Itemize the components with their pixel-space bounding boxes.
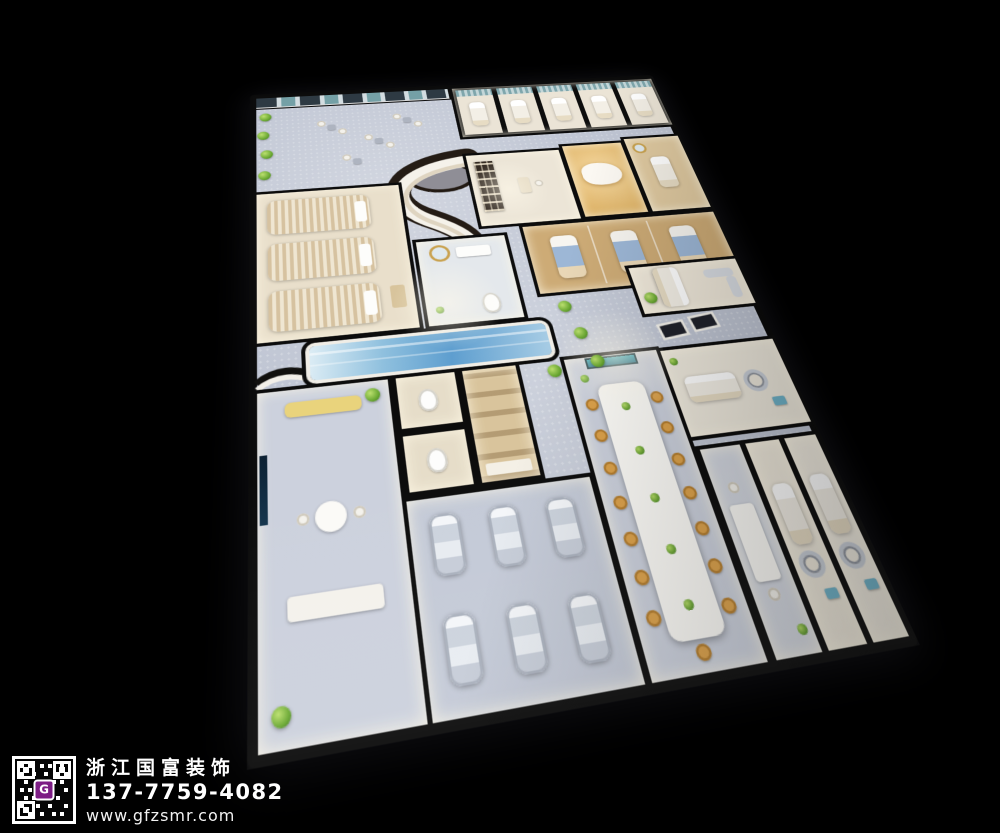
website-url: www.gfzsmr.com <box>86 805 284 826</box>
conference-chair <box>633 569 651 586</box>
office-chair <box>726 481 741 494</box>
display-shelf <box>473 161 504 212</box>
cubicle-bed <box>630 93 654 116</box>
canopy-bed <box>268 282 383 332</box>
company-name: 浙江国富装饰 <box>86 756 284 780</box>
conference-chair <box>649 391 665 404</box>
conference-chair <box>719 597 738 615</box>
plant <box>668 358 679 366</box>
canopy-bed <box>267 194 372 235</box>
treatment-recliner <box>505 601 550 676</box>
room-canopy-beds <box>257 185 420 344</box>
conference-chair <box>584 398 600 411</box>
equipment-cart <box>772 395 788 405</box>
conference-chair <box>612 495 629 510</box>
qr-logo-badge: G <box>34 780 55 801</box>
toilet <box>426 447 449 473</box>
plant <box>271 705 291 731</box>
cubicle-bed <box>550 98 573 122</box>
treatment-recliner <box>487 504 528 568</box>
brand-text-block: 浙江国富装饰 137-7759-4082 www.gfzsmr.com <box>86 756 284 826</box>
brand-watermark: G 浙江国富装饰 137-7759-4082 www.gfzsmr.com <box>12 756 284 826</box>
office-chair <box>297 513 310 527</box>
cubicle-curtain <box>576 83 613 91</box>
cubicle-bed <box>590 95 614 118</box>
conference-chair <box>602 461 619 476</box>
bathroom-sink <box>455 244 491 257</box>
vip-bed <box>683 372 743 403</box>
round-mirror <box>431 247 449 261</box>
round-table <box>314 499 348 534</box>
tv-screen <box>259 455 267 526</box>
plant <box>364 387 381 402</box>
office-chair <box>766 587 782 602</box>
blue-bed <box>549 235 588 279</box>
equipment-cart <box>824 587 841 600</box>
yellow-sofa <box>284 395 362 418</box>
office-chair <box>353 505 366 519</box>
treatment-recliner <box>442 611 485 688</box>
room-wc-2 <box>403 429 474 492</box>
side-cabinet <box>390 284 408 308</box>
conference-chair <box>659 421 675 434</box>
consult-desk <box>517 177 532 193</box>
cubicle-curtain <box>614 81 652 89</box>
equipment-cart <box>863 578 880 590</box>
cubicle-curtain <box>455 89 493 97</box>
treatment-recliner <box>428 512 467 577</box>
plant <box>435 306 444 314</box>
cubicle-curtain <box>496 87 533 95</box>
spa-lounger <box>579 162 626 186</box>
plant <box>580 374 591 383</box>
cubicle-curtain <box>536 85 573 93</box>
toilet <box>481 292 503 313</box>
conference-chair <box>693 520 711 536</box>
glass-partition <box>587 226 608 284</box>
counter <box>485 458 533 476</box>
floorplan-3d-render <box>247 75 920 770</box>
magnifier-lamp <box>745 372 767 389</box>
cubicle <box>455 89 503 135</box>
canopy-bed <box>268 236 377 281</box>
qr-finder <box>17 761 35 779</box>
conference-chair <box>670 452 687 466</box>
cubicle-bed <box>468 102 489 126</box>
vip-sofa <box>725 275 744 297</box>
conference-chair <box>593 429 609 443</box>
magnifier-lamp <box>840 545 864 565</box>
qr-code: G <box>12 756 76 824</box>
scene-canvas: G 浙江国富装饰 137-7759-4082 www.gfzsmr.com <box>0 0 1000 833</box>
room-wc-1 <box>396 372 463 429</box>
treatment-recliner <box>544 496 587 559</box>
phone-number: 137-7759-4082 <box>86 780 284 805</box>
treatment-recliner <box>566 592 613 665</box>
cubicle-bed <box>510 100 532 124</box>
vanity-mirror <box>633 144 645 152</box>
conference-chair <box>644 609 663 628</box>
consult-chair <box>534 180 544 187</box>
qr-finder <box>53 761 71 779</box>
plant <box>796 623 810 636</box>
sideboard <box>287 583 385 623</box>
qr-finder <box>17 801 35 819</box>
magnifier-lamp <box>800 554 824 575</box>
conference-chair <box>622 531 640 547</box>
treatment-bed <box>649 156 681 187</box>
conference-chair <box>694 643 714 662</box>
conference-chair <box>706 557 725 574</box>
toilet <box>417 388 439 412</box>
conference-chair <box>681 485 698 500</box>
